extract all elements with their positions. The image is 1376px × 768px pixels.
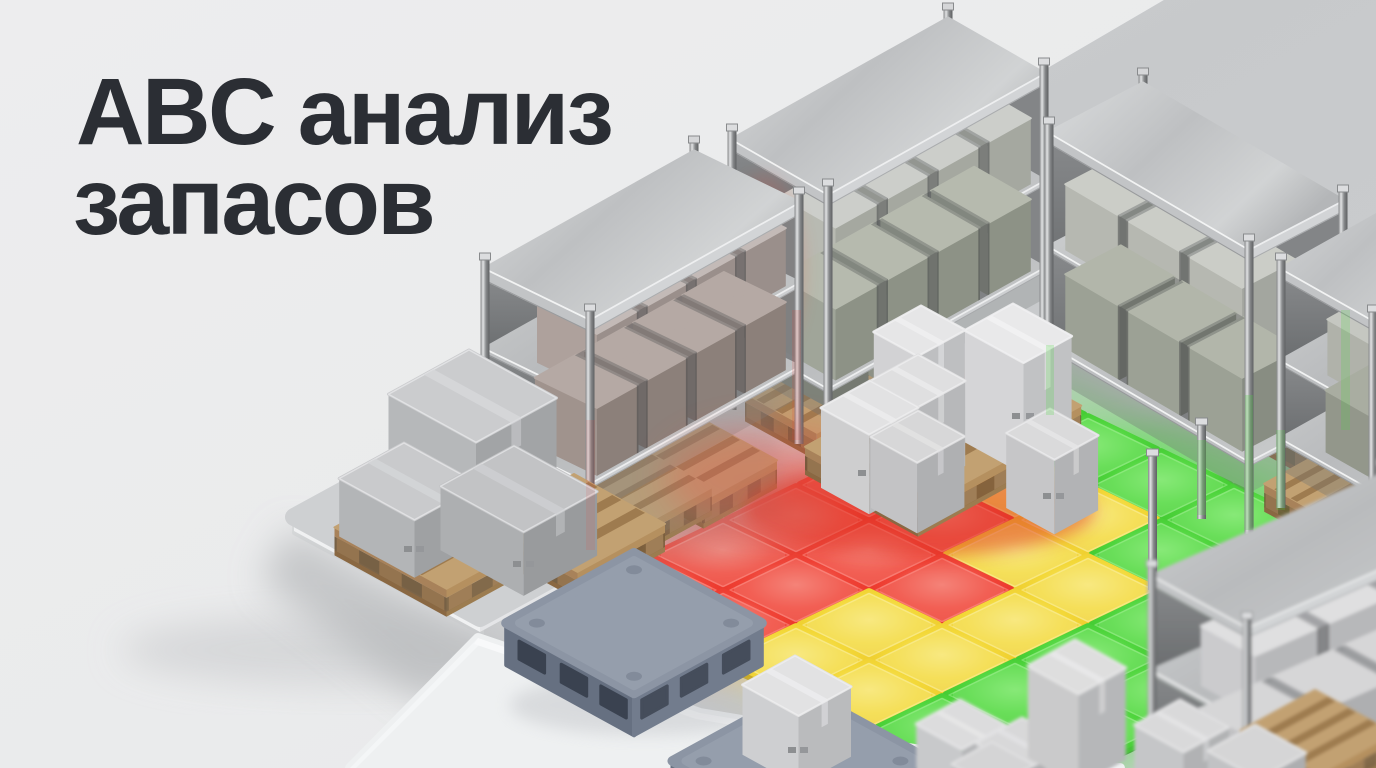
svg-text:запасов: запасов bbox=[73, 149, 433, 255]
